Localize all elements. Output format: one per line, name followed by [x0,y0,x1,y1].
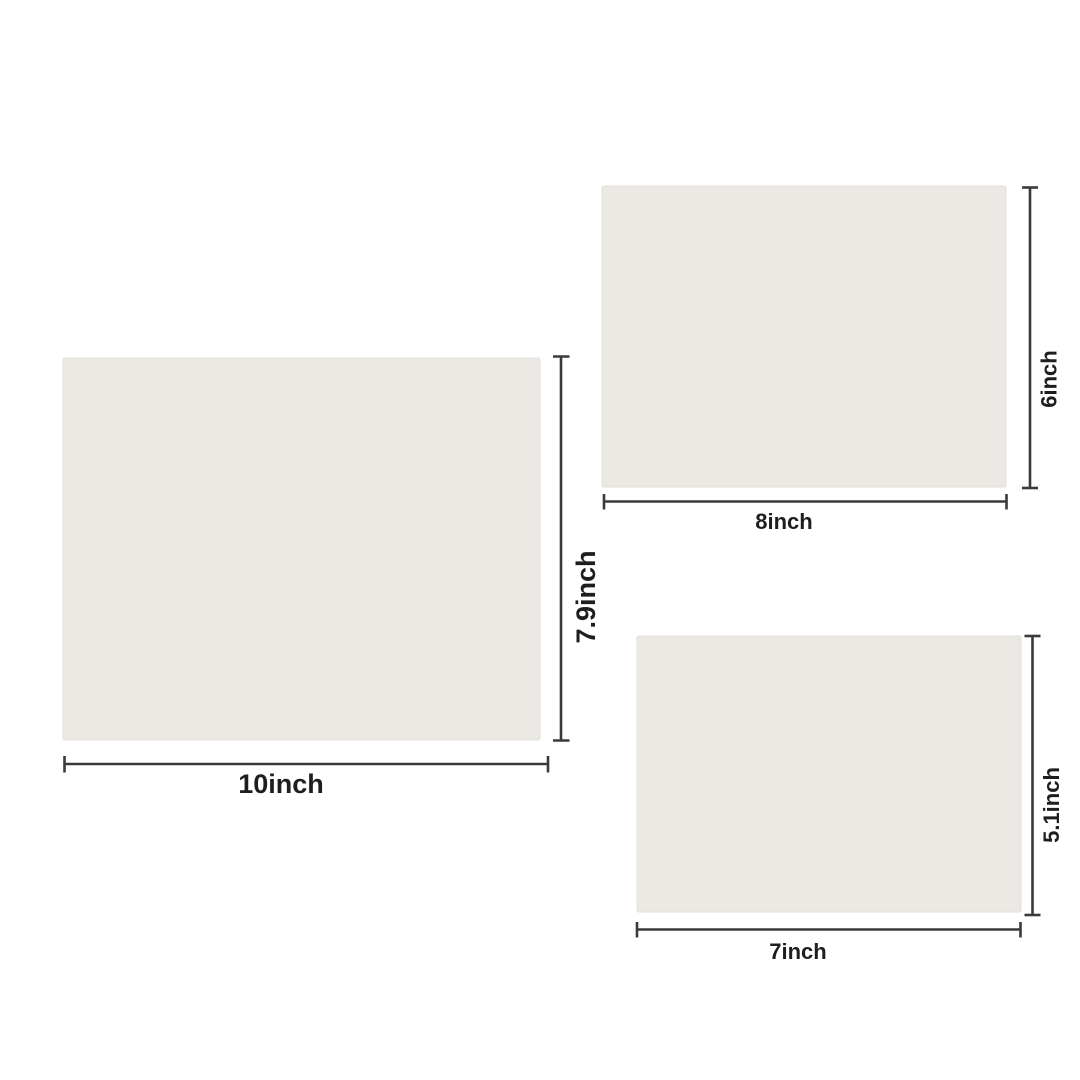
svg-text:5.1inch: 5.1inch [1039,767,1064,843]
svg-text:7inch: 7inch [769,939,826,964]
svg-text:7.9inch: 7.9inch [571,550,601,643]
svg-text:10inch: 10inch [238,769,324,799]
svg-text:8inch: 8inch [755,509,812,534]
svg-text:6inch: 6inch [1037,350,1062,407]
